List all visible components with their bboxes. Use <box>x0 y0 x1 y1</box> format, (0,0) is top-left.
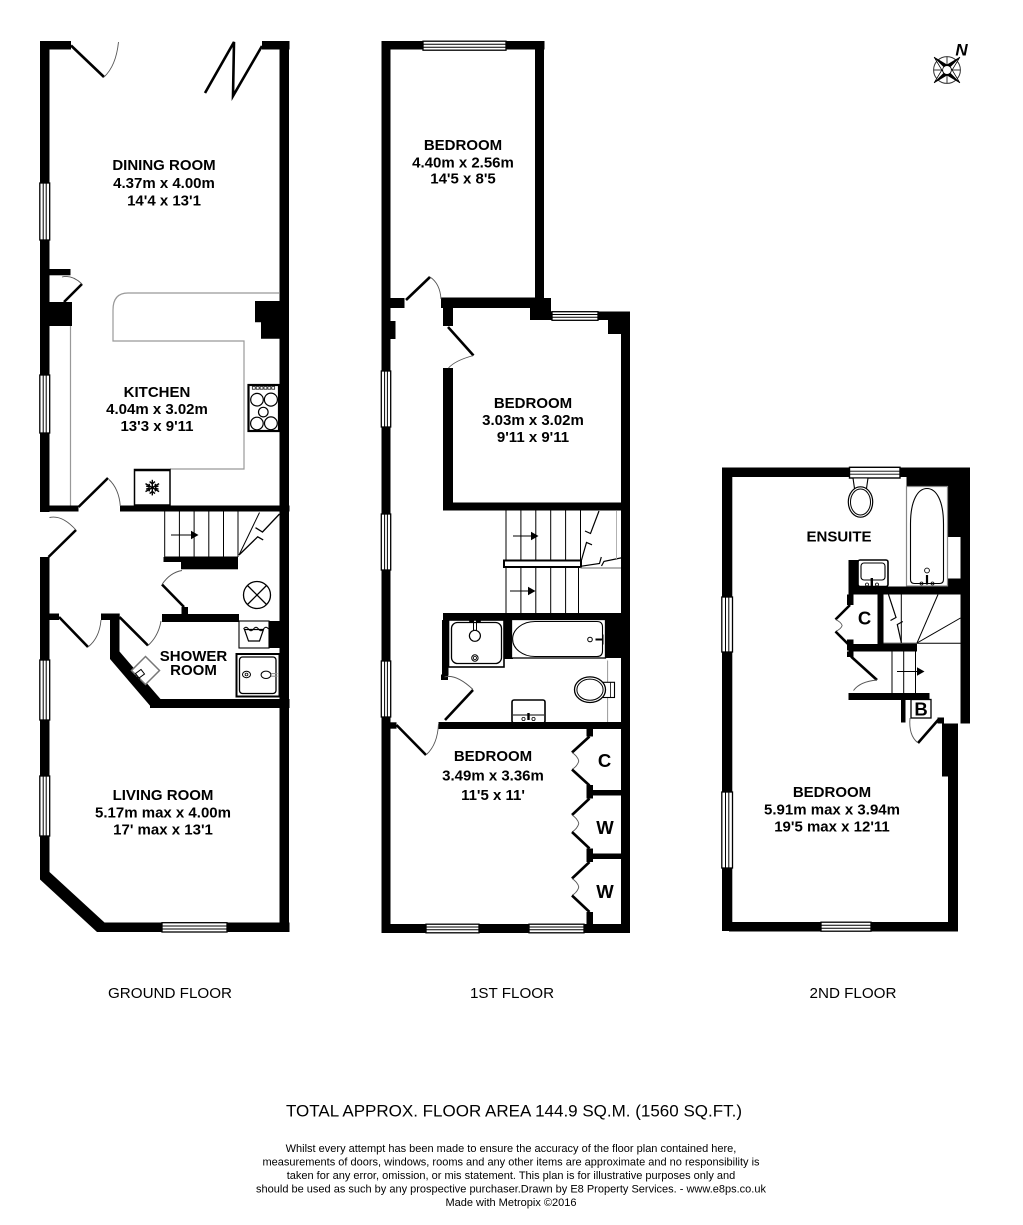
svg-text:DINING ROOM: DINING ROOM <box>112 157 215 174</box>
svg-text:TOTAL APPROX. FLOOR AREA 144.9: TOTAL APPROX. FLOOR AREA 144.9 SQ.M. (15… <box>286 1102 742 1121</box>
svg-text:14'4 x 13'1: 14'4 x 13'1 <box>127 193 201 210</box>
svg-text:BEDROOM: BEDROOM <box>793 784 871 801</box>
svg-text:N: N <box>955 41 968 60</box>
svg-text:5.17m max x 4.00m: 5.17m max x 4.00m <box>95 805 231 822</box>
svg-text:Made with Metropix ©2016: Made with Metropix ©2016 <box>445 1197 576 1209</box>
svg-text:BEDROOM: BEDROOM <box>424 137 502 154</box>
svg-text:LIVING ROOM: LIVING ROOM <box>113 787 214 804</box>
svg-text:11'5 x 11': 11'5 x 11' <box>461 787 525 804</box>
svg-text:C: C <box>858 608 871 629</box>
svg-text:B: B <box>914 699 927 720</box>
svg-text:9'11 x 9'11: 9'11 x 9'11 <box>497 429 569 446</box>
svg-text:BEDROOM: BEDROOM <box>494 395 572 412</box>
svg-text:GROUND FLOOR: GROUND FLOOR <box>108 985 232 1002</box>
svg-text:C: C <box>598 750 611 771</box>
svg-text:BEDROOM: BEDROOM <box>454 748 532 765</box>
svg-text:19'5 max x 12'11: 19'5 max x 12'11 <box>774 819 890 836</box>
svg-text:2ND FLOOR: 2ND FLOOR <box>810 985 897 1002</box>
svg-text:ROOM: ROOM <box>170 662 217 679</box>
svg-text:Whilst every attempt has been: Whilst every attempt has been made to en… <box>286 1143 737 1155</box>
svg-text:4.04m x 3.02m: 4.04m x 3.02m <box>106 401 208 418</box>
svg-text:1ST FLOOR: 1ST FLOOR <box>470 985 554 1002</box>
svg-text:should be used as such by any: should be used as such by any prospectiv… <box>256 1184 766 1196</box>
svg-text:17' max x 13'1: 17' max x 13'1 <box>113 822 213 839</box>
svg-text:taken for any error, omission,: taken for any error, omission, or mis st… <box>287 1170 736 1182</box>
svg-text:W: W <box>596 881 614 902</box>
svg-text:3.03m x 3.02m: 3.03m x 3.02m <box>482 412 584 429</box>
svg-text:KITCHEN: KITCHEN <box>124 384 191 401</box>
svg-text:3.49m x 3.36m: 3.49m x 3.36m <box>442 768 544 785</box>
svg-text:W: W <box>596 817 614 838</box>
svg-text:measurements of doors, windows: measurements of doors, windows, rooms an… <box>262 1157 760 1169</box>
svg-text:5.91m max x 3.94m: 5.91m max x 3.94m <box>764 802 900 819</box>
svg-text:4.40m x 2.56m: 4.40m x 2.56m <box>412 155 514 172</box>
svg-text:ENSUITE: ENSUITE <box>806 529 871 546</box>
svg-text:13'3 x 9'11: 13'3 x 9'11 <box>120 418 193 435</box>
svg-text:4.37m x 4.00m: 4.37m x 4.00m <box>113 175 215 192</box>
svg-text:14'5 x 8'5: 14'5 x 8'5 <box>430 171 496 188</box>
